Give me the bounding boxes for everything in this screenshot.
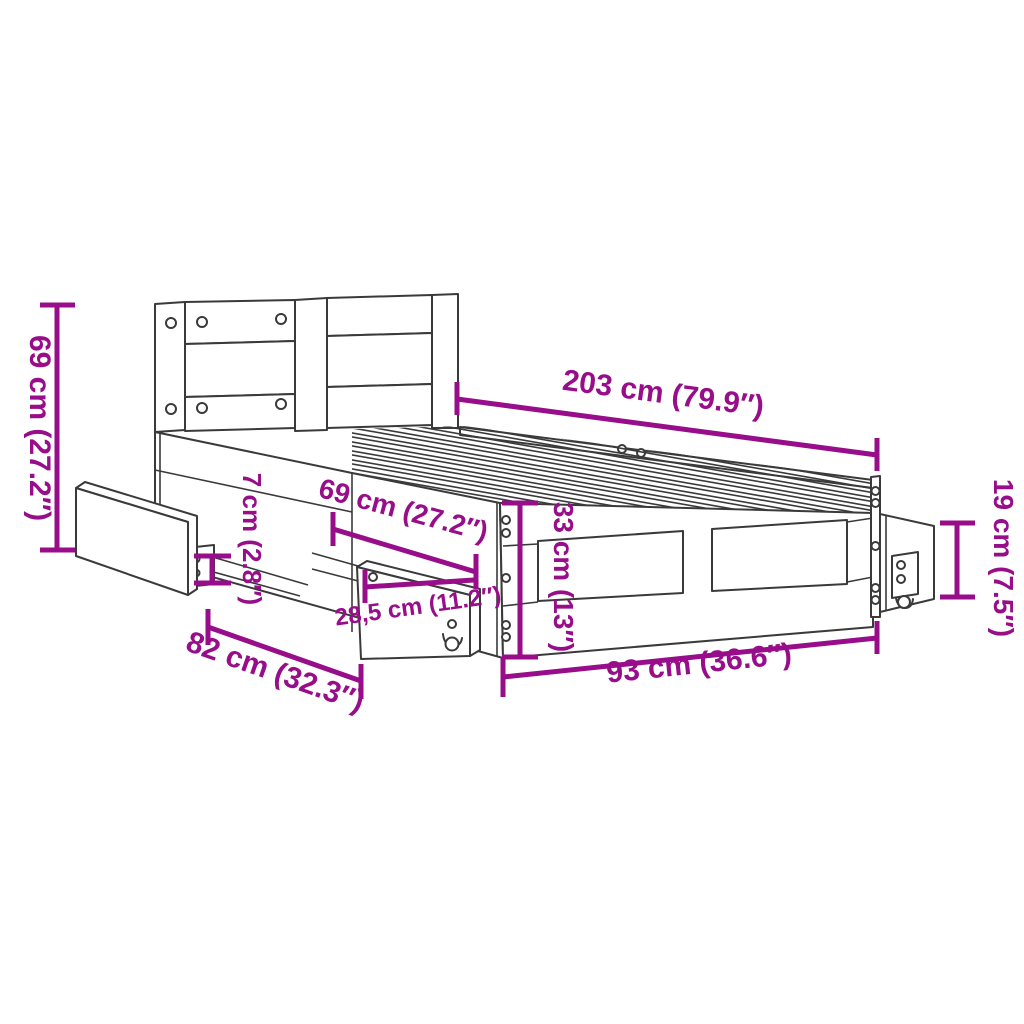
caster-wheel-right bbox=[898, 596, 910, 608]
dim-drawer-height-right: 19 cm (7.5″) bbox=[940, 479, 1019, 637]
drawer-right bbox=[880, 514, 934, 612]
dim-label-base-height: 33 cm (13″) bbox=[548, 502, 579, 652]
foot-end-plank bbox=[871, 476, 880, 617]
dim-label-total-height: 69 cm (27.2″) bbox=[23, 335, 56, 521]
dim-label-drawer-height-right: 19 cm (7.5″) bbox=[988, 479, 1019, 637]
caster-wheel-middle bbox=[446, 638, 459, 651]
bed-frame-drawing bbox=[76, 294, 934, 659]
headboard bbox=[155, 294, 458, 432]
dim-total-height: 69 cm (27.2″) bbox=[23, 305, 75, 550]
bed-dimension-diagram: 69 cm (27.2″) 203 cm (79.9″) 19 cm (7.5″… bbox=[0, 0, 1024, 1024]
dim-label-bracket-height: 7 cm (2.8″) bbox=[237, 473, 267, 605]
